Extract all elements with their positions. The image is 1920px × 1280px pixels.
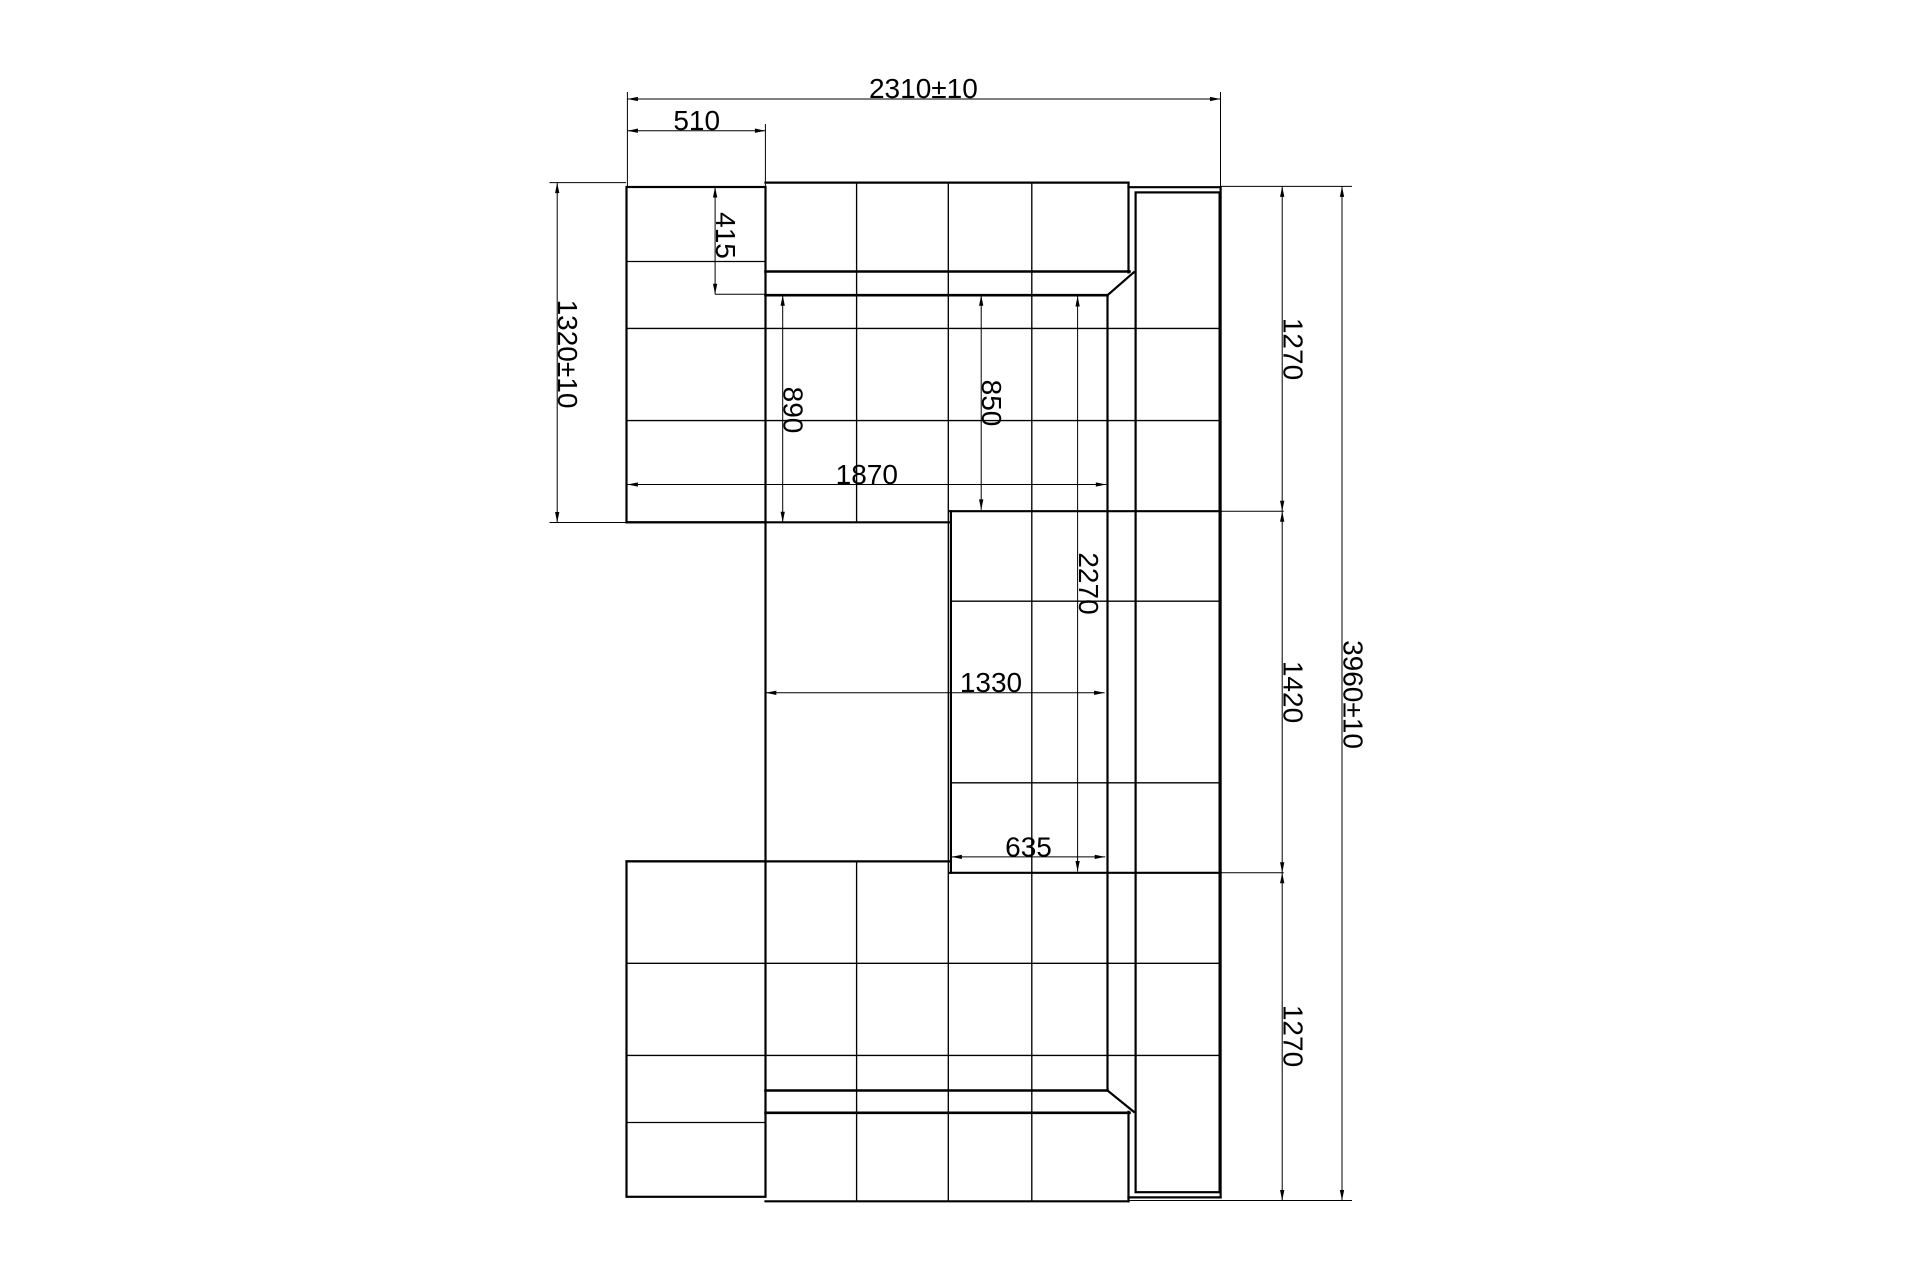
svg-text:850: 850 — [976, 380, 1007, 427]
svg-text:2310±10: 2310±10 — [869, 73, 978, 104]
svg-text:1270: 1270 — [1278, 318, 1309, 380]
svg-text:1870: 1870 — [836, 459, 898, 490]
svg-text:635: 635 — [1005, 831, 1052, 862]
svg-text:415: 415 — [710, 212, 741, 259]
svg-text:3960±10: 3960±10 — [1337, 640, 1368, 749]
svg-text:1420: 1420 — [1278, 661, 1309, 723]
svg-text:2270: 2270 — [1073, 552, 1104, 614]
svg-text:1330: 1330 — [960, 667, 1022, 698]
svg-text:1320±10: 1320±10 — [552, 300, 583, 409]
svg-text:890: 890 — [777, 387, 808, 434]
svg-text:510: 510 — [673, 105, 720, 136]
svg-text:1270: 1270 — [1278, 1005, 1309, 1067]
